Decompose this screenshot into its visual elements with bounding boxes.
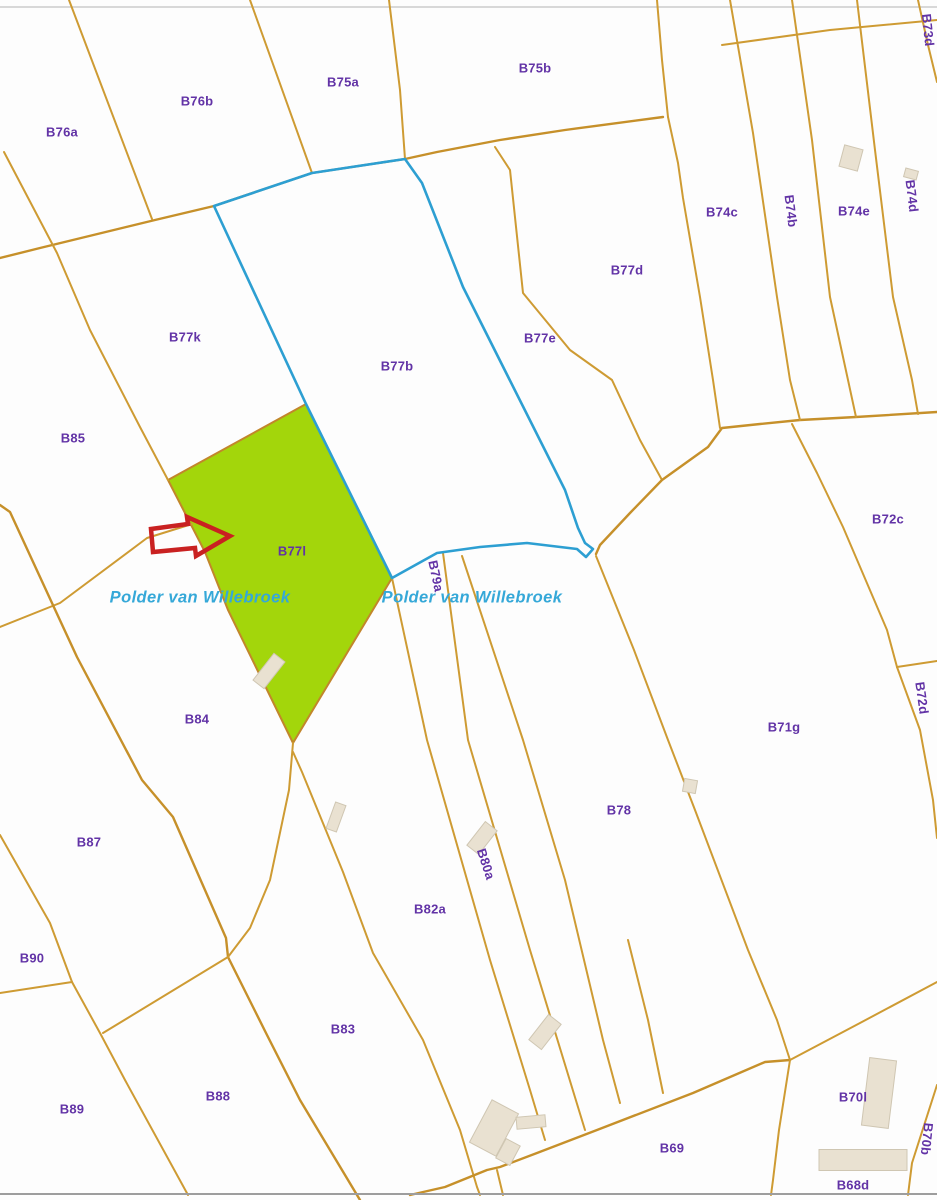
building xyxy=(326,802,346,832)
parcel-map-svg xyxy=(0,0,937,1200)
road-middle xyxy=(596,412,937,554)
boundary-b72d-west xyxy=(897,667,937,838)
highlighted-parcel-B77l xyxy=(168,404,392,743)
building xyxy=(682,778,697,793)
strip-short-lower xyxy=(628,940,663,1093)
building xyxy=(819,1150,907,1171)
stub-b90 xyxy=(0,982,72,993)
boundary-b77d-b74c xyxy=(668,117,720,428)
boundary-b78-b71g xyxy=(596,556,790,1060)
road-north xyxy=(0,117,663,258)
boundary-west-upper xyxy=(4,152,168,480)
boundary-b72c-b72d xyxy=(897,661,937,667)
strip-b74c-b74b xyxy=(730,0,800,420)
boundary-b69-b68d xyxy=(771,1060,790,1195)
boundary-b75b-east xyxy=(657,0,668,117)
road-b85-b84 xyxy=(0,524,192,627)
stub-bottom-center xyxy=(497,1170,503,1195)
boundary-b75a-b75b xyxy=(389,0,405,159)
boundary-b76a-b76b xyxy=(69,0,152,219)
map-canvas[interactable]: Polder van Willebroek Polder van Willebr… xyxy=(0,0,937,1200)
strip-b79a-east xyxy=(443,553,585,1130)
boundary-b76b-b75a xyxy=(250,0,312,173)
boundary-b87-b88 xyxy=(103,957,228,1033)
boundary-b87-west xyxy=(0,835,188,1195)
building xyxy=(839,145,863,171)
boundary-b82a-west xyxy=(293,752,480,1195)
building xyxy=(529,1014,561,1049)
boundary-b70l-b70b xyxy=(908,1085,937,1195)
building xyxy=(904,168,919,180)
strip-b74d-b73d xyxy=(918,0,937,82)
boundary-b69-north xyxy=(410,1060,790,1195)
strip-b79a-west xyxy=(392,578,545,1140)
boundary-b71g-b70l xyxy=(790,982,937,1060)
boundary-b77e-b77d xyxy=(495,147,662,480)
strip-b74b-b74e xyxy=(792,0,856,417)
building xyxy=(516,1115,546,1129)
boundary-b84-east xyxy=(228,743,293,957)
strip-b74e-b74d xyxy=(857,0,918,414)
cross-top-right xyxy=(722,20,937,45)
boundary-b72c-west xyxy=(792,424,897,667)
building xyxy=(861,1058,896,1129)
